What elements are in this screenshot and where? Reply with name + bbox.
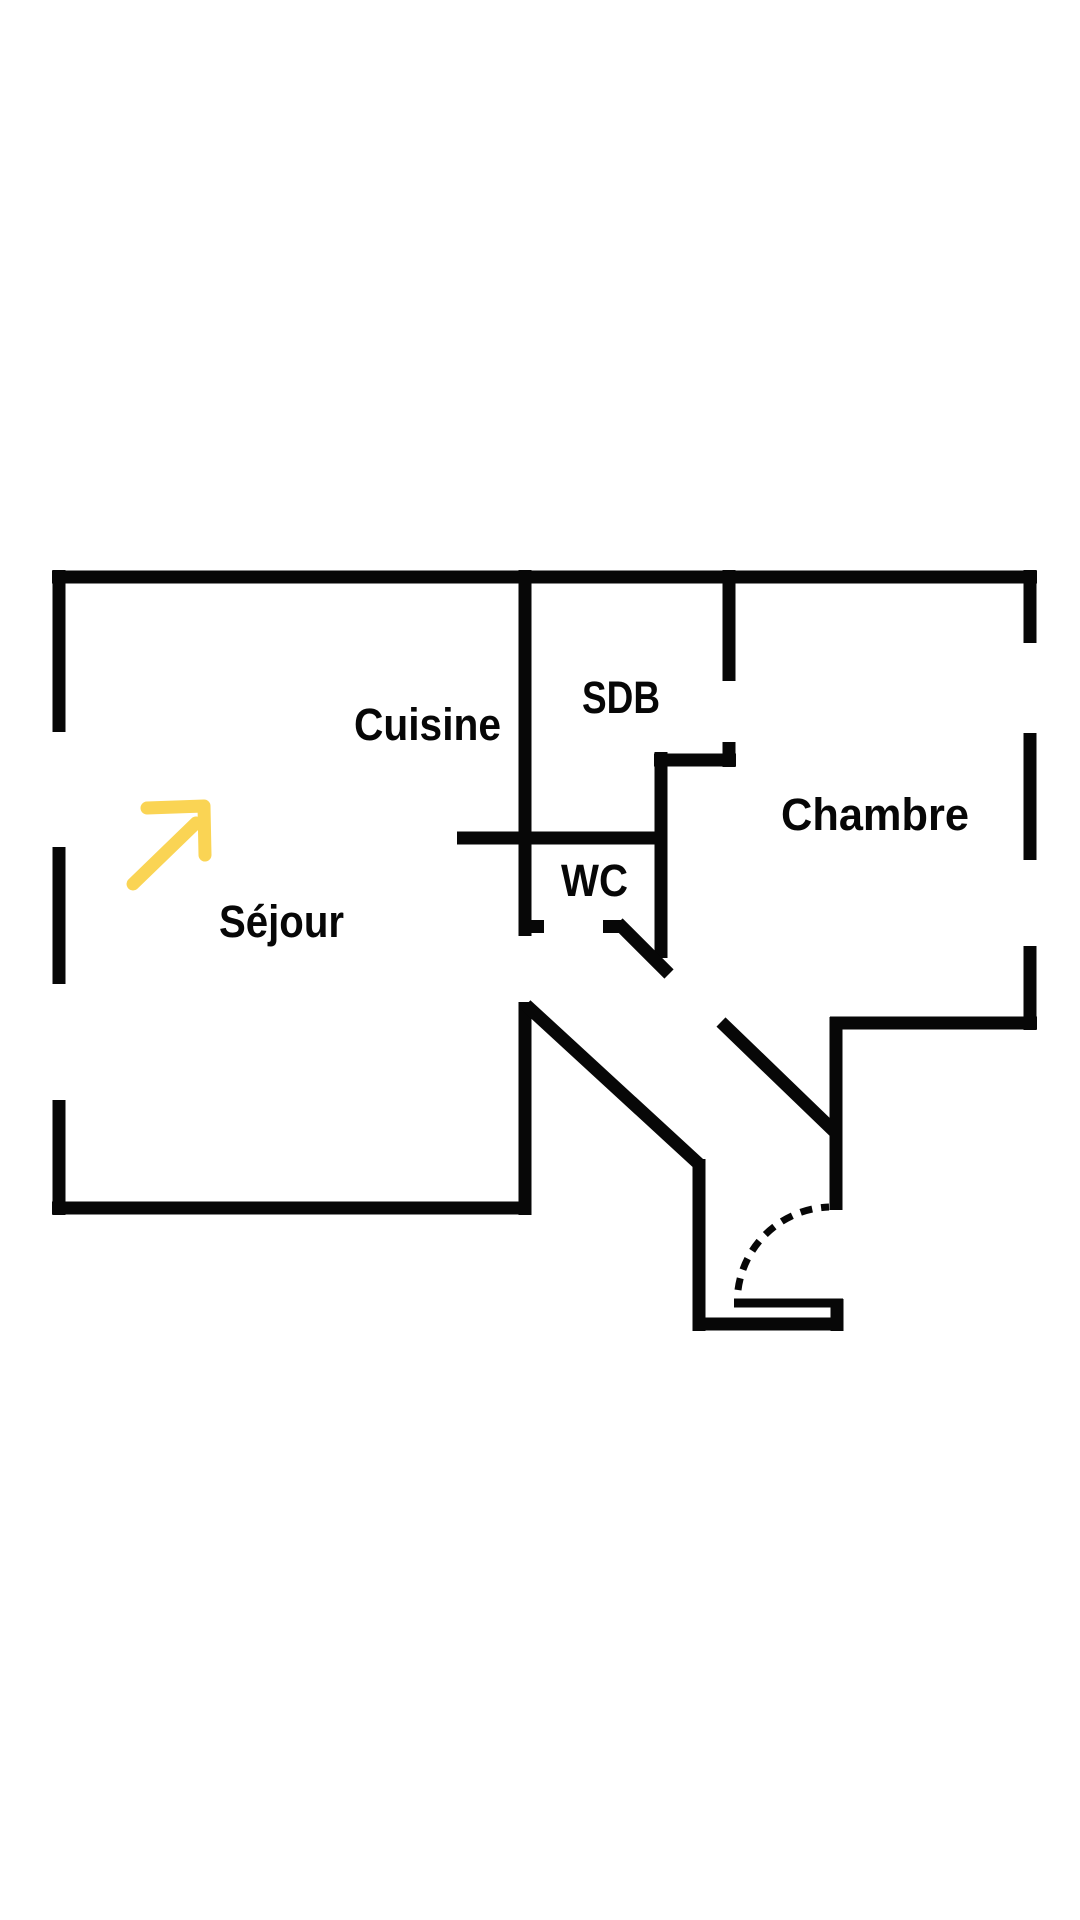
svg-text:Chambre: Chambre — [781, 789, 969, 840]
svg-text:SDB: SDB — [582, 672, 660, 723]
svg-text:Cuisine: Cuisine — [354, 699, 501, 750]
svg-text:WC: WC — [561, 855, 628, 906]
svg-text:Séjour: Séjour — [219, 896, 344, 947]
